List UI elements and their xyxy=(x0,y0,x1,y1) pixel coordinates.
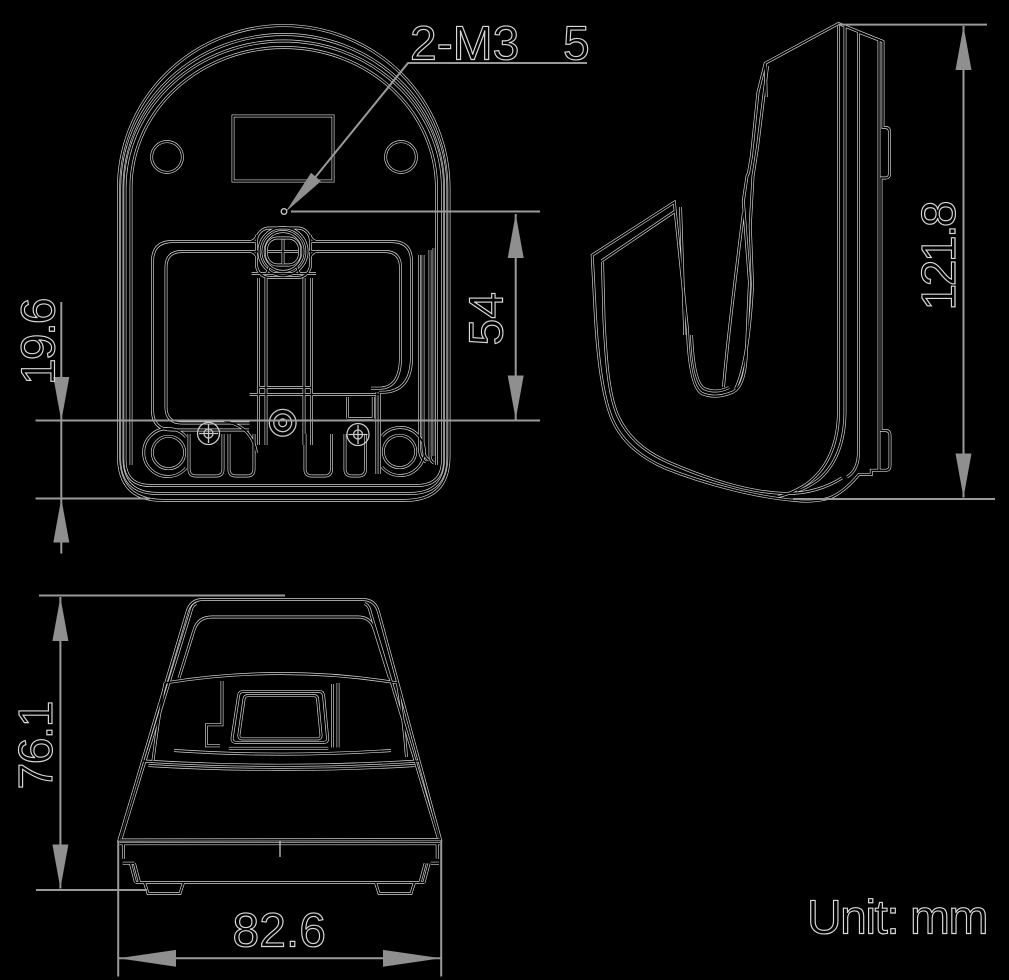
svg-text:82.6: 82.6 xyxy=(233,905,326,958)
svg-text:Unit: mm: Unit: mm xyxy=(807,892,987,945)
svg-text:76.1: 76.1 xyxy=(10,702,63,789)
svg-text:121.8: 121.8 xyxy=(913,202,966,310)
svg-text:2-M3: 2-M3 xyxy=(410,18,519,71)
svg-text:54: 54 xyxy=(461,292,514,345)
svg-text:5: 5 xyxy=(563,18,590,71)
svg-text:19.6: 19.6 xyxy=(13,299,66,385)
